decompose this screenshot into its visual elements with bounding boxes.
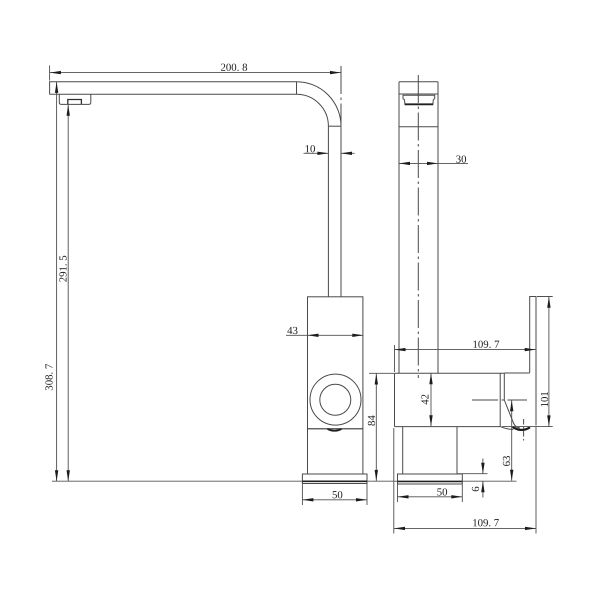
svg-text:308. 7: 308. 7 (44, 363, 56, 391)
svg-text:109. 7: 109. 7 (472, 339, 500, 351)
svg-text:109. 7: 109. 7 (472, 517, 500, 529)
svg-text:291. 5: 291. 5 (58, 255, 70, 282)
svg-text:42: 42 (420, 394, 432, 405)
svg-text:200. 8: 200. 8 (220, 62, 247, 74)
svg-text:84: 84 (366, 415, 378, 426)
svg-text:50: 50 (332, 489, 343, 501)
svg-text:50: 50 (437, 486, 448, 498)
svg-text:43: 43 (287, 325, 298, 337)
svg-text:101: 101 (539, 391, 551, 407)
svg-text:30: 30 (456, 154, 467, 166)
svg-text:6: 6 (470, 486, 482, 492)
svg-text:63: 63 (501, 456, 513, 467)
svg-text:10: 10 (305, 143, 316, 155)
